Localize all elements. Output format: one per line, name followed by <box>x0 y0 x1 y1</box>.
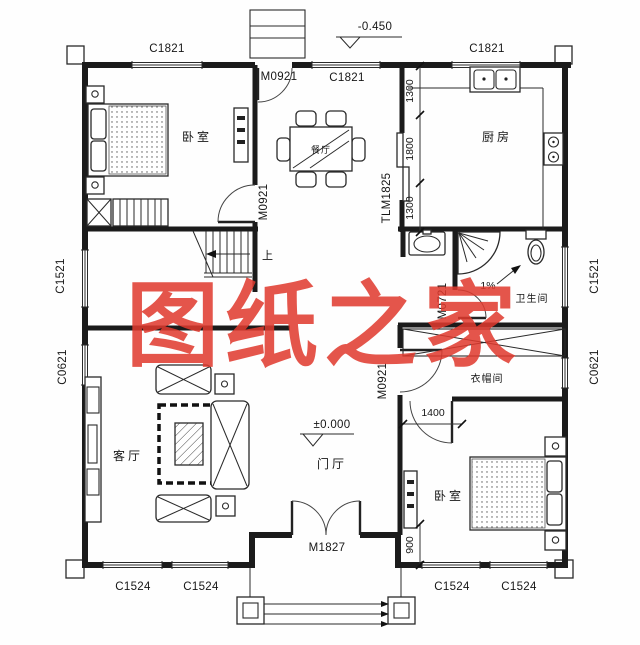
rear-steps <box>250 10 305 58</box>
window-bottom-bedroom-2 <box>490 561 547 569</box>
window-bottom-bedroom-1 <box>422 561 480 569</box>
living-furniture <box>85 365 249 522</box>
label-window-left-upper: C1521 <box>55 258 67 293</box>
label-dim-bedroom-side: 900 <box>404 536 416 554</box>
label-room-foyer: 门厅 <box>317 456 347 471</box>
dimension-bedroom-side <box>416 520 424 569</box>
label-room-bedroom-bottom: 卧室 <box>434 488 464 503</box>
entry-double-door <box>292 501 360 535</box>
window-right-upper <box>561 247 569 307</box>
label-kitchen-slide-door: TLM1825 <box>381 173 393 224</box>
label-bedroom-top-door: M0921 <box>258 184 270 221</box>
label-elevation-entry: ±0.000 <box>314 419 351 431</box>
bedroom-top-furniture <box>86 86 248 226</box>
label-room-living: 客厅 <box>113 448 143 463</box>
label-room-bedroom-top: 卧室 <box>182 129 212 144</box>
label-dim-kitchen-2: 1800 <box>404 137 416 161</box>
floor-plan-drawing: C1821 -0.450 C1821 M0921 C1821 TLM1825 1… <box>0 0 640 645</box>
window-top-middle <box>312 61 380 69</box>
label-window-right-upper: C1521 <box>589 258 601 293</box>
window-bottom-living-2 <box>172 561 228 569</box>
label-dim-kitchen-3: 1300 <box>404 196 416 220</box>
label-window-left-lower: C0621 <box>57 349 69 384</box>
window-right-lower <box>561 358 569 388</box>
porch <box>237 568 415 627</box>
bedroom-bottom-furniture <box>404 437 566 550</box>
label-dim-bedroom-width: 1400 <box>421 407 445 419</box>
label-rear-door: M0921 <box>261 71 298 83</box>
window-bottom-living-1 <box>103 561 162 569</box>
dimension-bedroom-width <box>399 420 466 428</box>
label-window-right-lower: C0621 <box>589 349 601 384</box>
label-room-kitchen: 厨房 <box>482 129 512 144</box>
label-window-bottom-bedroom-1: C1524 <box>434 581 470 593</box>
label-dim-kitchen-1: 1300 <box>404 79 416 103</box>
label-window-top-middle: C1821 <box>329 72 364 84</box>
label-stairs-up: 上 <box>262 249 274 262</box>
label-window-top-left: C1821 <box>149 43 184 55</box>
stairs <box>193 231 252 277</box>
label-window-top-right: C1821 <box>469 43 504 55</box>
window-top-left <box>132 61 202 69</box>
label-elevation-rear: -0.450 <box>358 21 392 33</box>
floor-plan: C1821 -0.450 C1821 M0921 C1821 TLM1825 1… <box>0 0 640 645</box>
bedroom-top-door <box>218 185 255 222</box>
label-window-bottom-living-2: C1524 <box>183 581 219 593</box>
label-entry-door: M1827 <box>309 542 346 554</box>
kitchen-fixtures <box>408 67 563 229</box>
elevation-marker-rear <box>336 37 402 48</box>
window-left-upper <box>81 250 89 307</box>
label-room-dining: 餐厅 <box>311 144 331 155</box>
watermark: 图纸之家 <box>126 274 522 378</box>
label-window-bottom-living-1: C1524 <box>115 581 151 593</box>
elevation-marker-entry <box>300 434 354 446</box>
label-window-bottom-bedroom-2: C1524 <box>501 581 537 593</box>
